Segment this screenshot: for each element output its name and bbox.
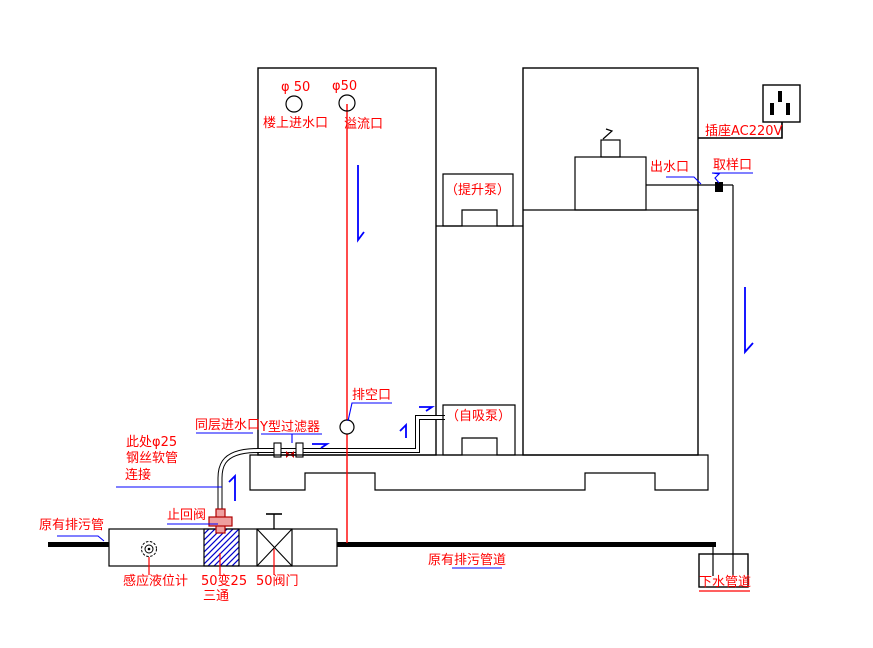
label-hose-note-3: 连接 (125, 469, 151, 483)
label-outlet: 出水口 (650, 161, 689, 175)
schematic-linework (0, 0, 873, 648)
down-arrow-right (745, 287, 753, 352)
label-socket: 插座AC220V (705, 125, 782, 139)
blue-leaders (57, 173, 753, 568)
suction-pipe-outer (220, 418, 445, 532)
lift-pump-outline (443, 174, 513, 226)
socket-slot-top (778, 91, 782, 102)
label-existing-sewage-pipeline: 原有排污管道 (428, 554, 506, 568)
socket-slot-right (786, 103, 790, 115)
drain-empty-leader (348, 403, 392, 421)
label-valve-50: 50阀门 (256, 575, 299, 589)
suction-pipe-inner (220, 418, 445, 532)
label-existing-sewage-pipe: 原有排污管 (39, 519, 104, 533)
right-tank (523, 68, 698, 455)
existing-sewage-underline (57, 536, 104, 541)
label-overflow: 溢流口 (344, 118, 383, 132)
outlet-pump-lever (603, 129, 612, 139)
down-arrow-left-tank (358, 165, 364, 240)
pedestal-base (250, 455, 708, 490)
diagram-canvas: φ 50 φ50 楼上进水口 溢流口 （提升泵） 插座AC220V 出水口 取样… (0, 0, 873, 648)
label-lift-pump: （提升泵） (445, 184, 510, 198)
label-check-valve: 止回阀 (167, 509, 206, 523)
label-phi50-right: φ50 (332, 80, 357, 94)
sampling-leader (712, 173, 753, 183)
label-drain-empty: 排空口 (352, 389, 391, 403)
upstairs-inlet-port (286, 96, 302, 112)
label-hose-note-2: 钢丝软管 (126, 452, 178, 466)
right-arrow-pump (419, 407, 432, 411)
label-down-pipe: 下水管道 (699, 576, 751, 590)
up-arrow-pump-inlet (400, 425, 406, 438)
label-level-sensor: 感应液位计 (123, 575, 188, 589)
label-same-floor-inlet: 同层进水口 (195, 419, 260, 433)
socket-icon (763, 85, 800, 122)
outlet-underline (666, 177, 701, 184)
up-arrow-hose (229, 476, 235, 501)
label-upstairs-inlet: 楼上进水口 (263, 117, 328, 131)
level-sensor-dot (148, 548, 151, 551)
label-tee-2: 三通 (203, 590, 229, 604)
sampling-port-square (715, 182, 723, 192)
label-hose-note-1: 此处φ25 (126, 436, 177, 450)
label-sampling: 取样口 (713, 159, 752, 173)
label-phi50-left: φ 50 (281, 81, 310, 95)
label-self-priming-pump: （自吸泵） (446, 410, 511, 424)
outlet-pump-housing (575, 157, 646, 210)
label-tee-1: 50变25 (201, 575, 247, 589)
drain-empty-port-circle (340, 420, 354, 434)
tee-hatched-block (204, 529, 239, 566)
right-arrow-filter (312, 444, 327, 448)
label-y-filter: Y型过滤器 (260, 421, 320, 435)
outlet-pump-cap (601, 140, 620, 157)
socket-slot-left (770, 103, 774, 115)
